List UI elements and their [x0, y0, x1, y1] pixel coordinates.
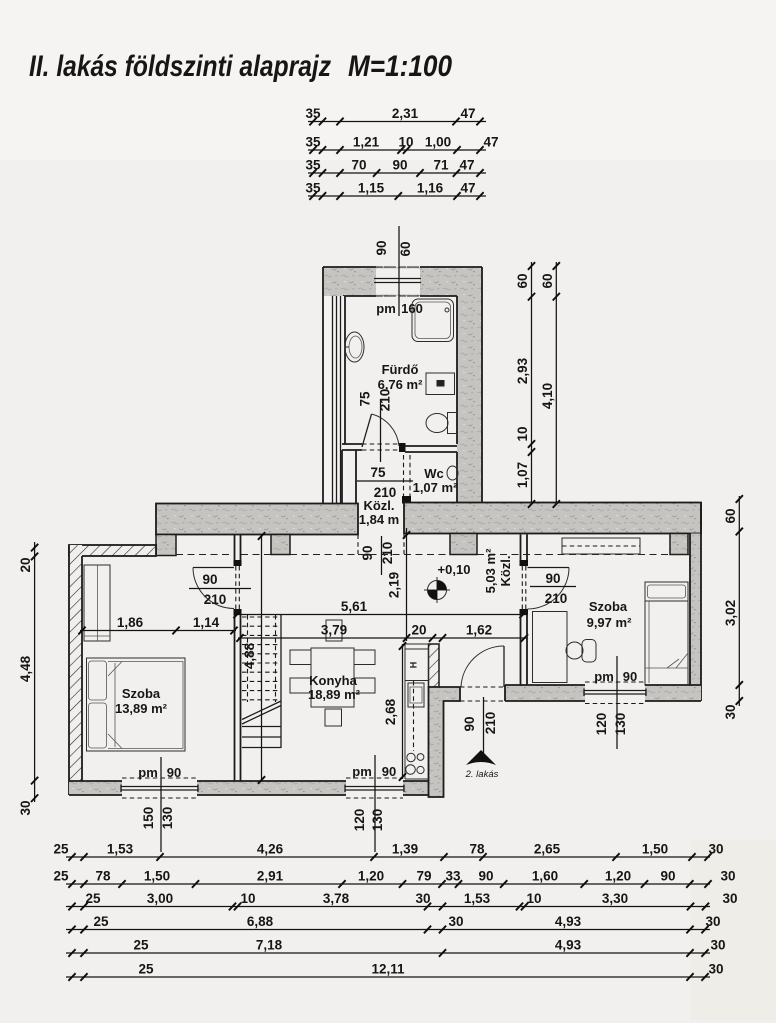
svg-text:210: 210 [380, 542, 395, 565]
svg-text:2,19: 2,19 [387, 572, 402, 598]
svg-text:Wc: Wc [424, 466, 444, 481]
svg-text:35: 35 [305, 181, 321, 196]
svg-text:35: 35 [305, 135, 321, 150]
svg-text:pm: pm [376, 301, 396, 316]
svg-text:90: 90 [478, 869, 493, 884]
svg-text:12,11: 12,11 [371, 962, 405, 977]
svg-text:Fürdő: Fürdő [382, 362, 419, 377]
svg-text:10: 10 [515, 426, 530, 441]
svg-text:60: 60 [540, 273, 555, 288]
svg-text:90: 90 [382, 764, 396, 779]
svg-text:7,18: 7,18 [256, 938, 283, 953]
svg-text:25: 25 [93, 914, 109, 929]
svg-text:5,03 m²: 5,03 m² [483, 548, 498, 593]
svg-text:2. lakás: 2. lakás [465, 769, 499, 780]
svg-text:30: 30 [722, 891, 737, 906]
svg-text:20: 20 [18, 557, 33, 572]
svg-text:Közl.: Közl. [498, 555, 513, 586]
svg-text:4,93: 4,93 [555, 938, 582, 953]
svg-text:10: 10 [240, 891, 255, 906]
svg-text:71: 71 [433, 158, 449, 173]
svg-text:+0,10: +0,10 [438, 562, 471, 577]
svg-text:30: 30 [415, 891, 430, 906]
svg-text:4,26: 4,26 [257, 842, 284, 857]
svg-text:30: 30 [18, 800, 33, 815]
svg-text:H: H [409, 662, 419, 669]
svg-text:120: 120 [594, 713, 609, 736]
svg-text:210: 210 [378, 389, 393, 412]
svg-text:1,21: 1,21 [353, 135, 380, 150]
svg-text:90: 90 [462, 716, 477, 731]
svg-text:1,00: 1,00 [425, 135, 451, 150]
svg-text:78: 78 [95, 869, 111, 884]
svg-text:3,30: 3,30 [602, 891, 628, 906]
svg-text:20: 20 [411, 623, 426, 638]
svg-text:1,86: 1,86 [117, 615, 144, 630]
svg-text:60: 60 [398, 241, 413, 256]
svg-text:II. lakás földszinti alaprajz: II. lakás földszinti alaprajz [29, 50, 331, 83]
svg-text:120: 120 [352, 809, 367, 832]
svg-text:30: 30 [710, 938, 725, 953]
svg-text:1,07: 1,07 [515, 462, 530, 488]
svg-text:18,89 m²: 18,89 m² [308, 687, 361, 702]
svg-text:210: 210 [483, 712, 498, 735]
svg-text:130: 130 [613, 713, 628, 736]
svg-text:130: 130 [370, 809, 385, 832]
svg-text:13,89 m²: 13,89 m² [115, 701, 168, 716]
svg-text:pm: pm [352, 764, 372, 779]
svg-text:75: 75 [370, 465, 386, 480]
svg-text:1,20: 1,20 [605, 869, 631, 884]
svg-text:35: 35 [305, 106, 321, 121]
svg-text:5,61: 5,61 [341, 599, 368, 614]
svg-text:1,20: 1,20 [358, 869, 384, 884]
svg-text:90: 90 [660, 869, 675, 884]
svg-text:90: 90 [392, 158, 407, 173]
svg-text:78: 78 [469, 842, 485, 857]
svg-text:2,31: 2,31 [392, 106, 419, 121]
svg-text:Szoba: Szoba [589, 599, 628, 614]
svg-text:1,07 m²: 1,07 m² [413, 480, 458, 495]
svg-text:1,62: 1,62 [466, 623, 492, 638]
svg-text:30: 30 [705, 914, 720, 929]
svg-text:130: 130 [160, 807, 175, 830]
svg-text:pm: pm [138, 765, 158, 780]
svg-text:33: 33 [445, 869, 461, 884]
svg-text:70: 70 [351, 158, 366, 173]
svg-text:60: 60 [723, 508, 738, 523]
svg-text:90: 90 [202, 572, 217, 587]
svg-text:75: 75 [358, 391, 373, 407]
svg-text:M=1:100: M=1:100 [348, 50, 452, 83]
svg-text:1,15: 1,15 [358, 181, 385, 196]
svg-text:1,60: 1,60 [532, 869, 558, 884]
svg-text:30: 30 [708, 842, 723, 857]
svg-text:3,00: 3,00 [147, 891, 173, 906]
svg-text:2,93: 2,93 [515, 357, 530, 384]
svg-text:3,79: 3,79 [321, 623, 347, 638]
svg-text:30: 30 [723, 704, 738, 719]
svg-text:79: 79 [416, 869, 431, 884]
svg-text:30: 30 [708, 962, 723, 977]
svg-text:160: 160 [401, 301, 423, 316]
svg-text:2,91: 2,91 [257, 869, 284, 884]
svg-text:Konyha: Konyha [309, 673, 357, 688]
svg-text:30: 30 [448, 914, 463, 929]
svg-text:25: 25 [53, 842, 69, 857]
svg-text:1,39: 1,39 [392, 842, 418, 857]
svg-text:90: 90 [545, 571, 560, 586]
svg-text:10: 10 [526, 891, 541, 906]
svg-text:210: 210 [545, 591, 568, 606]
svg-text:4,88: 4,88 [242, 642, 257, 669]
svg-text:25: 25 [85, 891, 101, 906]
svg-text:Szoba: Szoba [122, 686, 161, 701]
svg-text:4,10: 4,10 [540, 383, 555, 409]
svg-text:1,14: 1,14 [193, 615, 220, 630]
svg-text:3,02: 3,02 [723, 600, 738, 626]
svg-text:6,76 m²: 6,76 m² [378, 377, 423, 392]
svg-text:10: 10 [398, 135, 413, 150]
svg-text:Közl.: Közl. [363, 498, 394, 513]
svg-text:60: 60 [515, 273, 530, 288]
svg-text:1,53: 1,53 [464, 891, 491, 906]
svg-text:2,65: 2,65 [534, 842, 561, 857]
svg-text:1,53: 1,53 [107, 842, 134, 857]
svg-text:25: 25 [133, 938, 149, 953]
svg-text:47: 47 [460, 181, 475, 196]
svg-text:2,68: 2,68 [383, 698, 398, 725]
svg-text:1,50: 1,50 [144, 869, 170, 884]
svg-text:1,50: 1,50 [642, 842, 668, 857]
svg-text:1,16: 1,16 [417, 181, 444, 196]
svg-text:47: 47 [483, 135, 498, 150]
svg-text:90: 90 [167, 765, 181, 780]
svg-text:25: 25 [138, 962, 154, 977]
svg-text:47: 47 [460, 106, 475, 121]
svg-text:90: 90 [360, 545, 375, 560]
svg-text:210: 210 [204, 592, 227, 607]
svg-text:150: 150 [141, 807, 156, 830]
svg-text:9,97 m²: 9,97 m² [587, 615, 632, 630]
svg-text:6,88: 6,88 [247, 914, 274, 929]
svg-text:4,48: 4,48 [18, 655, 33, 682]
svg-text:1,84 m: 1,84 m [359, 512, 399, 527]
svg-text:90: 90 [374, 240, 389, 255]
svg-text:35: 35 [305, 158, 321, 173]
svg-text:47: 47 [459, 158, 474, 173]
svg-text:3,78: 3,78 [323, 891, 350, 906]
svg-text:4,93: 4,93 [555, 914, 582, 929]
svg-text:25: 25 [53, 869, 69, 884]
svg-text:pm: pm [594, 669, 614, 684]
svg-text:30: 30 [720, 869, 735, 884]
svg-text:90: 90 [623, 669, 637, 684]
